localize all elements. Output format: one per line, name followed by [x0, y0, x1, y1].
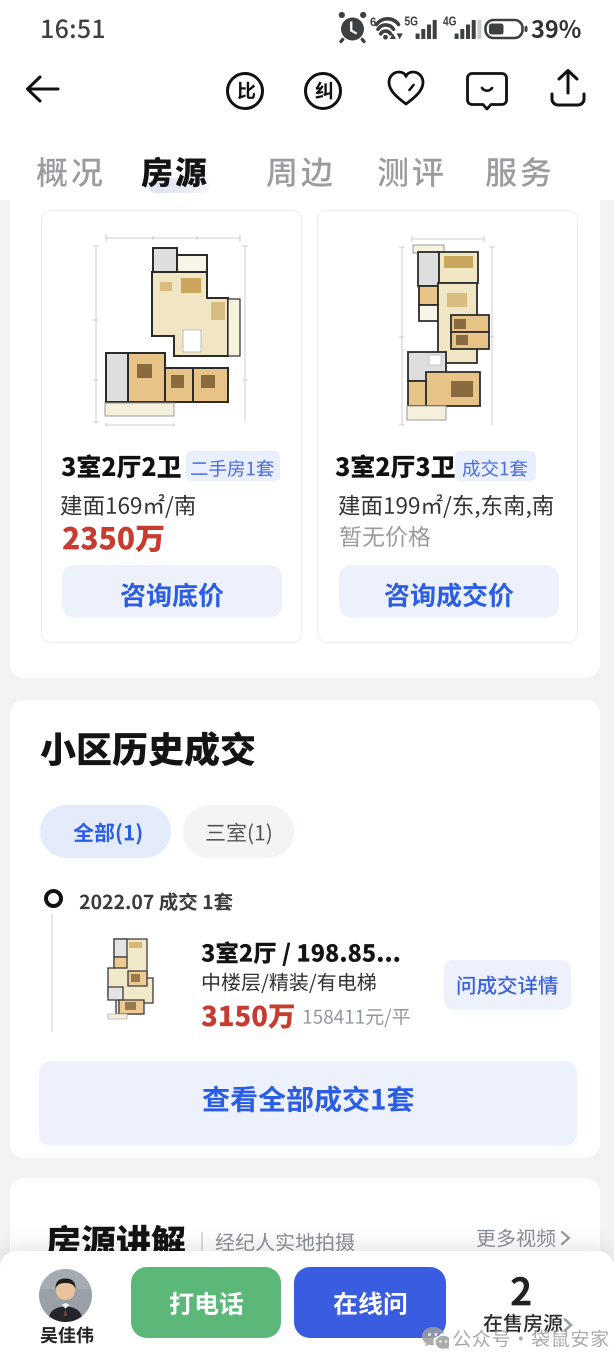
svg-text:4G: 4G [443, 15, 457, 29]
svg-text:5G: 5G [405, 15, 419, 29]
